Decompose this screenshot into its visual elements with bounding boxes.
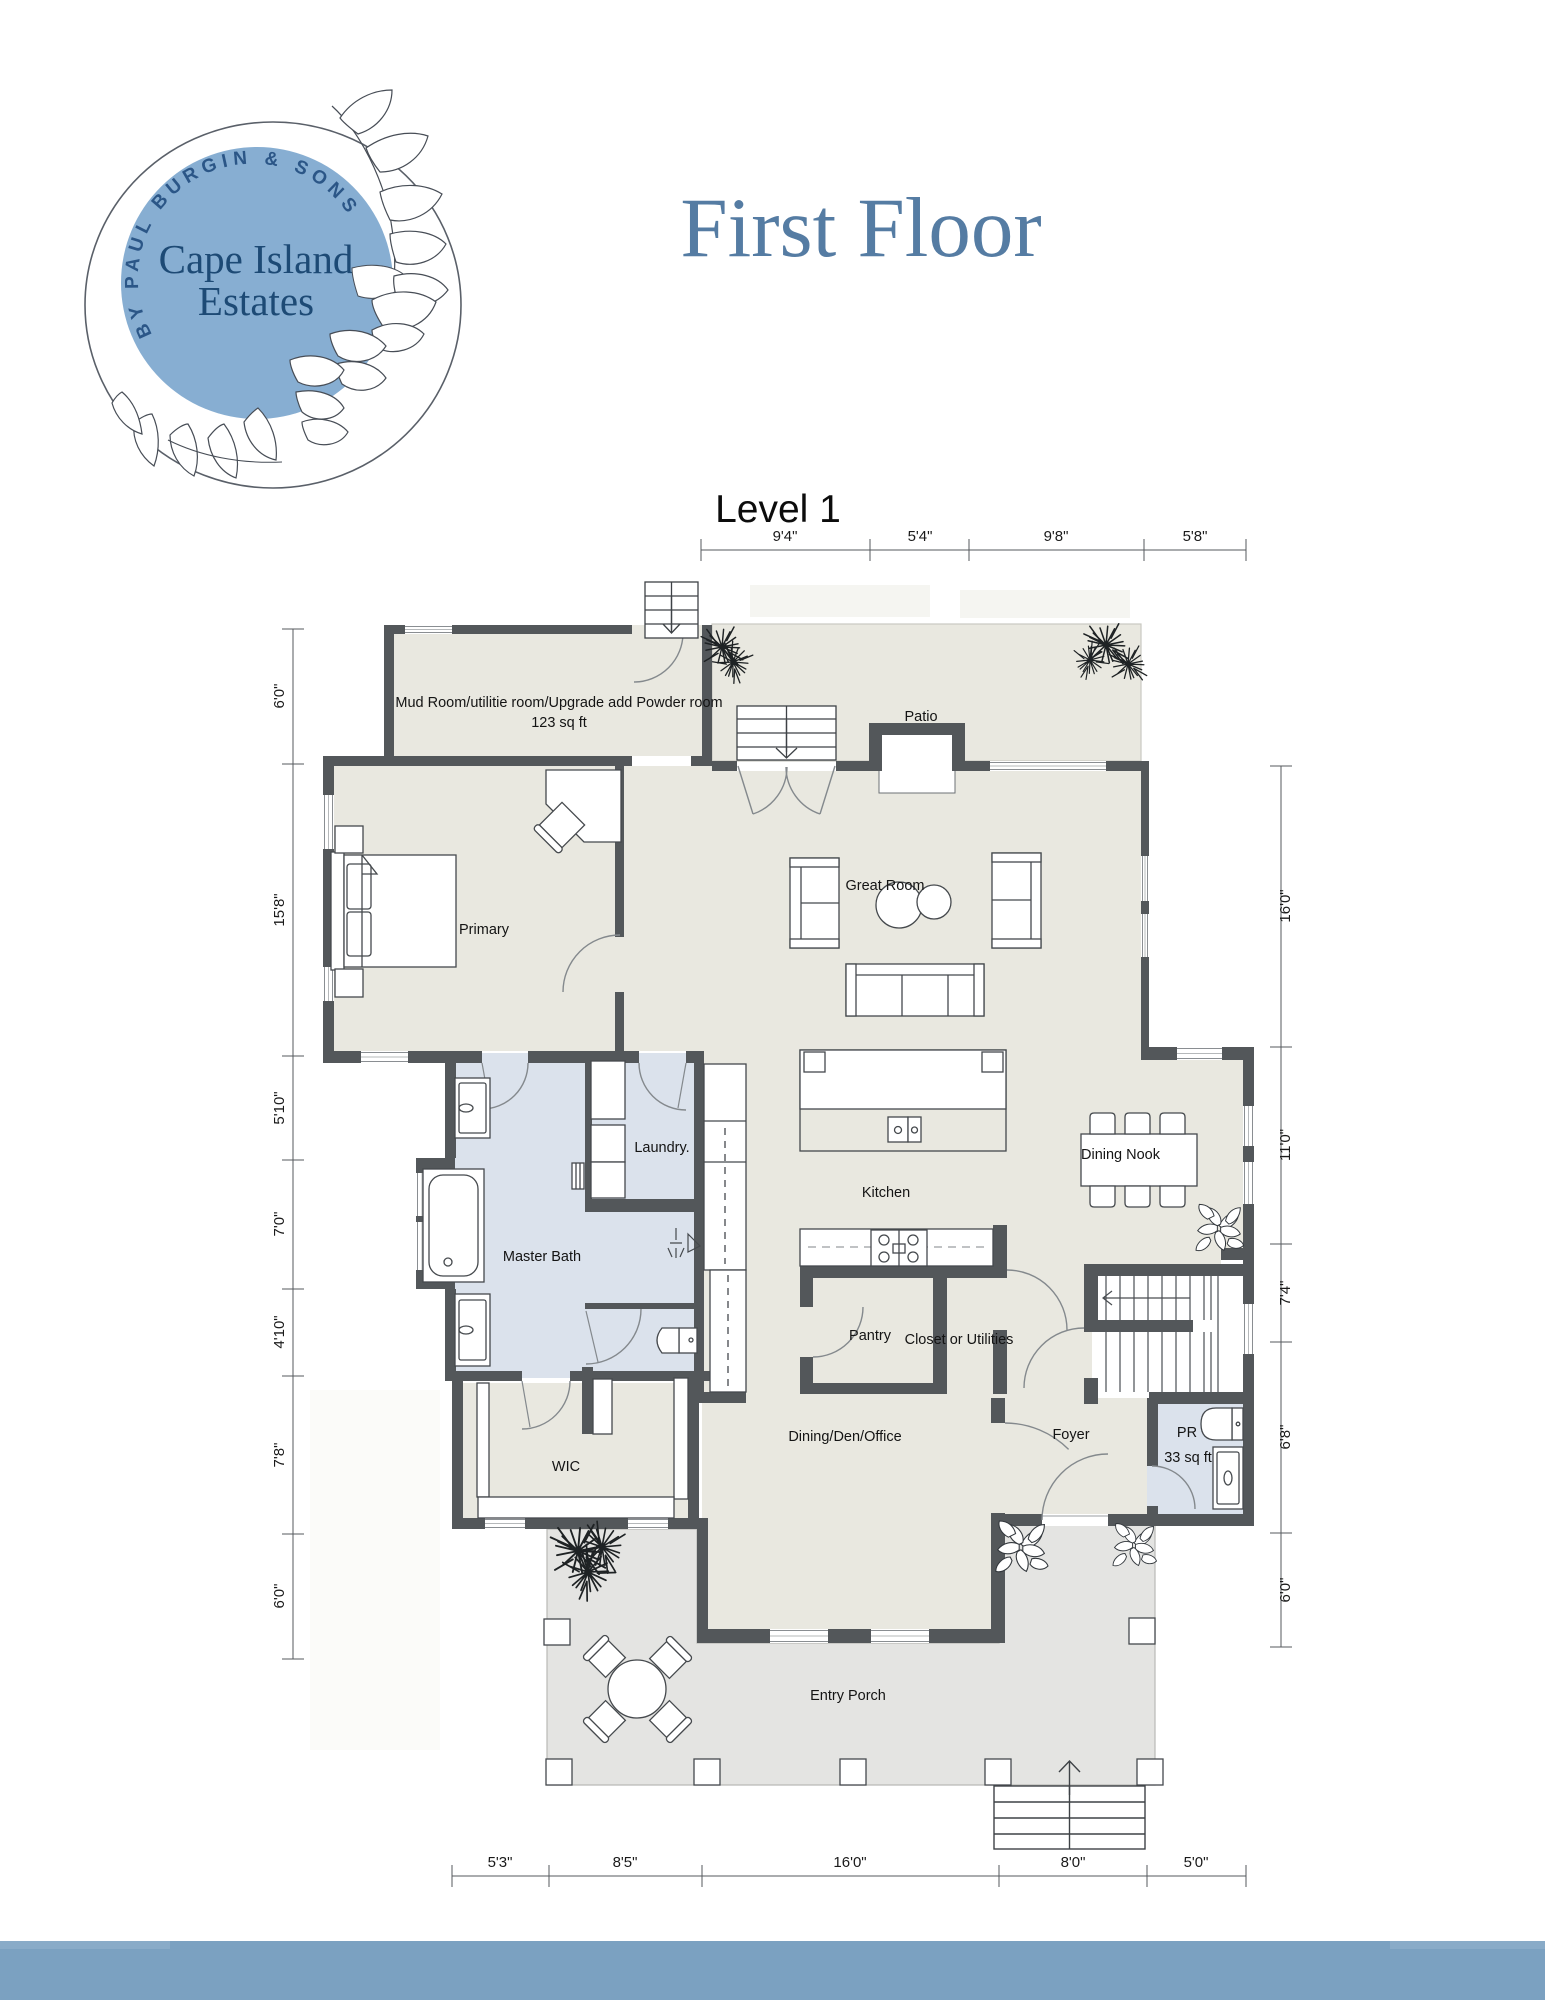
svg-text:Pantry: Pantry xyxy=(849,1328,892,1344)
svg-text:Great Room: Great Room xyxy=(846,878,925,894)
svg-text:5'8": 5'8" xyxy=(1183,528,1208,545)
svg-text:33 sq ft: 33 sq ft xyxy=(1164,1450,1212,1466)
svg-text:Level 1: Level 1 xyxy=(715,488,841,531)
svg-text:4'10": 4'10" xyxy=(271,1315,288,1348)
svg-text:WIC: WIC xyxy=(552,1459,580,1475)
svg-text:6'0": 6'0" xyxy=(1277,1578,1294,1603)
svg-text:11'0": 11'0" xyxy=(1277,1129,1294,1161)
svg-text:Entry Porch: Entry Porch xyxy=(810,1688,886,1704)
svg-text:Mud Room/utilitie room/Upgrade: Mud Room/utilitie room/Upgrade add Powde… xyxy=(395,695,722,711)
svg-text:PR: PR xyxy=(1177,1425,1197,1441)
svg-text:9'8": 9'8" xyxy=(1044,528,1069,545)
svg-text:Cape Island: Cape Island xyxy=(159,236,354,282)
svg-text:Master Bath: Master Bath xyxy=(503,1249,581,1265)
svg-text:5'4": 5'4" xyxy=(908,528,933,545)
svg-text:Kitchen: Kitchen xyxy=(862,1185,910,1201)
svg-text:9'4": 9'4" xyxy=(773,528,798,545)
svg-text:8'5": 8'5" xyxy=(613,1854,638,1871)
svg-text:Dining/Den/Office: Dining/Den/Office xyxy=(788,1429,901,1445)
svg-text:Estates: Estates xyxy=(198,278,314,324)
svg-text:6'0": 6'0" xyxy=(271,1584,288,1609)
svg-text:6'0": 6'0" xyxy=(271,684,288,709)
svg-text:15'8": 15'8" xyxy=(271,893,288,926)
svg-text:7'0": 7'0" xyxy=(271,1212,288,1237)
svg-text:8'0": 8'0" xyxy=(1061,1854,1086,1871)
svg-text:Patio: Patio xyxy=(904,709,937,725)
svg-text:6'8": 6'8" xyxy=(1277,1425,1294,1450)
svg-text:Foyer: Foyer xyxy=(1052,1427,1089,1443)
svg-text:7'8": 7'8" xyxy=(271,1443,288,1468)
svg-text:Laundry.: Laundry. xyxy=(634,1140,689,1156)
svg-text:16'0": 16'0" xyxy=(833,1854,866,1871)
svg-text:7'4": 7'4" xyxy=(1277,1281,1294,1306)
svg-text:First Floor: First Floor xyxy=(680,181,1041,275)
svg-text:5'3": 5'3" xyxy=(488,1854,513,1871)
svg-text:Dining Nook: Dining Nook xyxy=(1081,1147,1161,1163)
svg-text:123 sq ft: 123 sq ft xyxy=(531,715,587,731)
svg-text:5'0": 5'0" xyxy=(1184,1854,1209,1871)
svg-text:16'0": 16'0" xyxy=(1277,889,1294,922)
svg-text:5'10": 5'10" xyxy=(271,1091,288,1124)
svg-text:Primary: Primary xyxy=(459,922,510,938)
svg-text:Closet or Utilities: Closet or Utilities xyxy=(905,1332,1014,1348)
